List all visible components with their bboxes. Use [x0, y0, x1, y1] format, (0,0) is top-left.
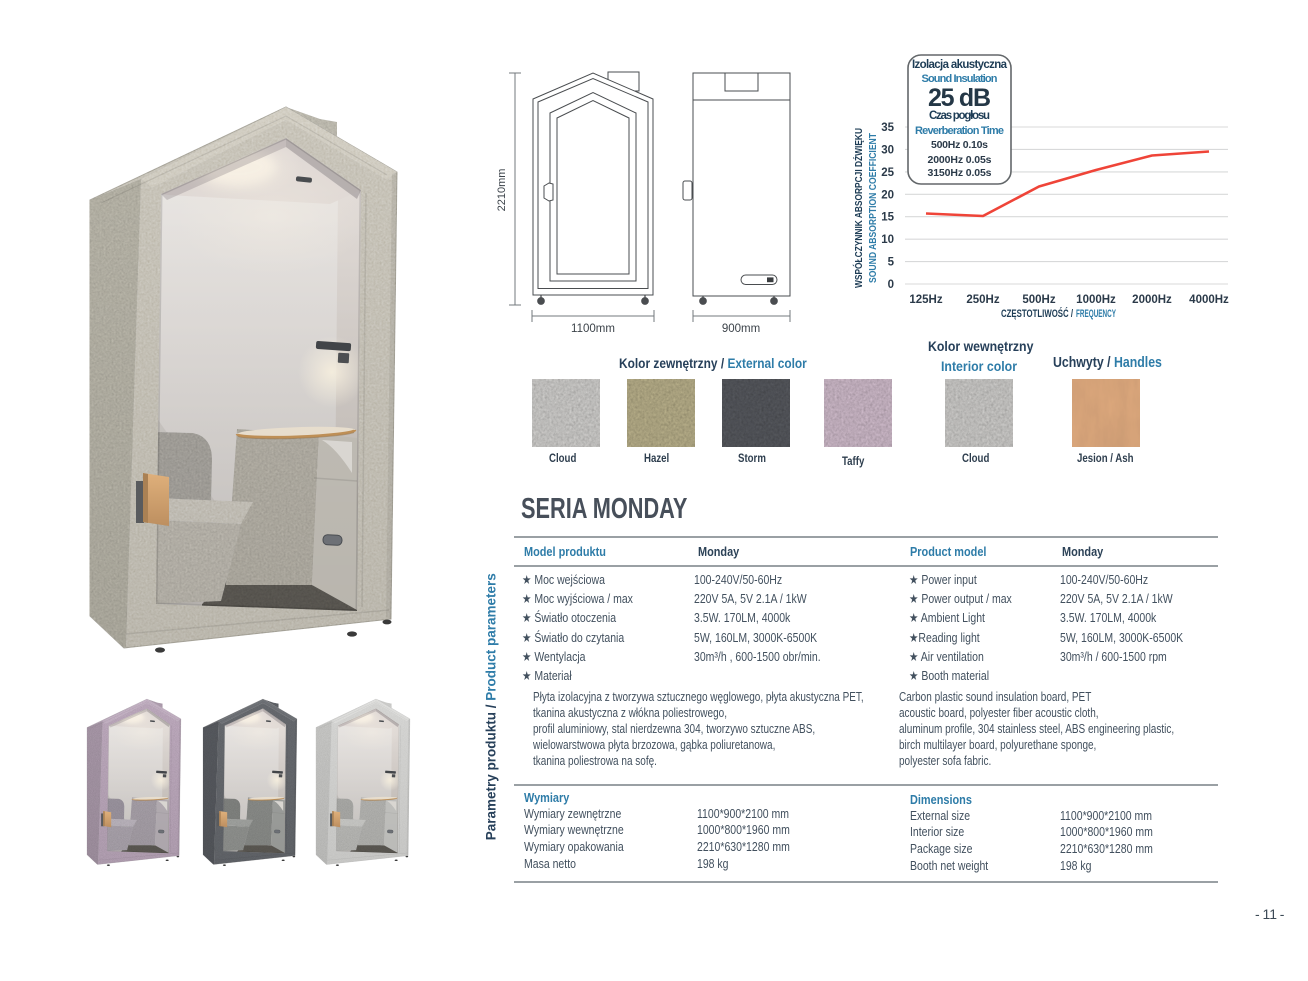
svg-text:CZĘSTOTLIWOŚĆ /: CZĘSTOTLIWOŚĆ / — [1001, 307, 1073, 320]
svg-text:4000Hz: 4000Hz — [1189, 294, 1229, 306]
svg-text:WSPÓŁCZYNNIK ABSORPCJI DŹWIĘKU: WSPÓŁCZYNNIK ABSORPCJI DŹWIĘKU — [853, 128, 865, 288]
svg-text:15: 15 — [881, 212, 894, 224]
svg-text:2000Hz: 2000Hz — [1132, 294, 1172, 306]
svg-text:500Hz 0.10s: 500Hz 0.10s — [931, 139, 988, 151]
svg-text:5: 5 — [888, 257, 895, 269]
svg-text:2210mm: 2210mm — [496, 169, 508, 212]
svg-text:25 dB: 25 dB — [928, 84, 991, 112]
svg-text:Izolacja akustyczna: Izolacja akustyczna — [912, 59, 1008, 71]
svg-text:10: 10 — [881, 234, 894, 246]
svg-text:FREQUENCY: FREQUENCY — [1076, 308, 1116, 320]
svg-text:SOUND ABSORPTION COEFFICIENT: SOUND ABSORPTION COEFFICIENT — [868, 133, 879, 283]
svg-text:30: 30 — [881, 144, 894, 156]
svg-text:3150Hz 0.05s: 3150Hz 0.05s — [928, 167, 992, 179]
svg-text:125Hz: 125Hz — [909, 294, 942, 306]
svg-text:1000Hz: 1000Hz — [1076, 294, 1116, 306]
svg-text:250Hz: 250Hz — [966, 294, 999, 306]
svg-text:0: 0 — [888, 279, 894, 291]
svg-text:Czas pogłosu: Czas pogłosu — [929, 110, 990, 122]
svg-text:25: 25 — [881, 167, 894, 179]
svg-text:35: 35 — [881, 122, 894, 134]
svg-text:500Hz: 500Hz — [1022, 294, 1055, 306]
svg-text:20: 20 — [881, 189, 894, 201]
svg-text:2000Hz 0.05s: 2000Hz 0.05s — [928, 154, 992, 166]
svg-text:Reverberation Time: Reverberation Time — [915, 125, 1004, 137]
